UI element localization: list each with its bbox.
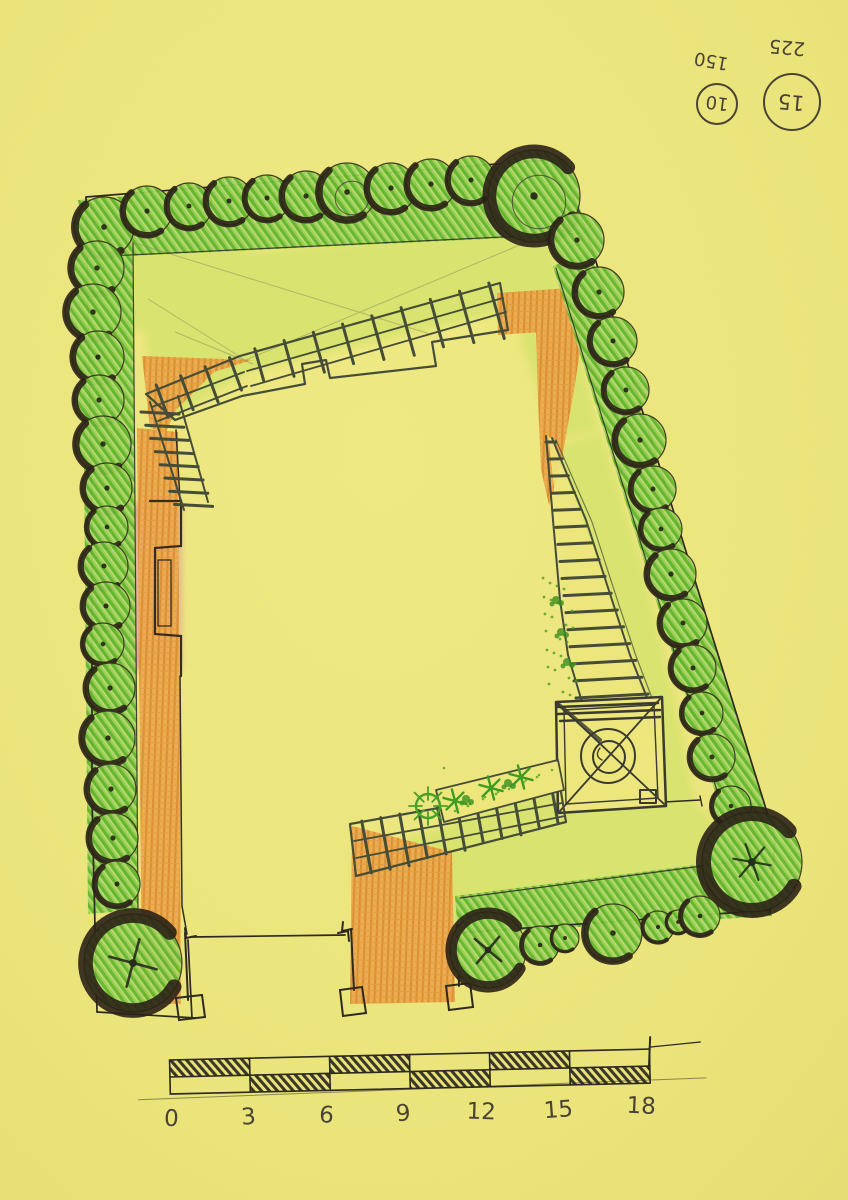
tree <box>659 599 707 647</box>
scale-tick-18: 18 <box>626 1093 656 1120</box>
tree <box>680 896 720 936</box>
tree <box>681 692 723 734</box>
tree <box>646 549 696 599</box>
tree <box>450 912 526 988</box>
scale-tick-3: 3 <box>240 1104 257 1131</box>
scale-tick-9: 9 <box>395 1100 412 1127</box>
annotation-large-value: 15 <box>777 89 806 115</box>
plan-drawing: 10 150 15 225 0 3 <box>0 0 848 1200</box>
tree <box>614 414 666 466</box>
tree <box>670 645 716 691</box>
tree <box>82 623 124 665</box>
tree <box>88 813 138 863</box>
scanned-landscape-plan: 10 150 15 225 0 3 <box>0 0 848 1200</box>
tree <box>85 663 135 713</box>
tree <box>94 861 140 907</box>
path-gate-strip <box>350 826 455 1004</box>
tree <box>702 812 802 912</box>
annotation-large-label: 225 <box>768 34 806 59</box>
scale-tick-6: 6 <box>318 1102 334 1129</box>
scale-tick-15: 15 <box>543 1096 574 1124</box>
tree <box>84 914 182 1012</box>
tree <box>603 367 649 413</box>
tree <box>589 317 637 365</box>
tree <box>550 213 604 267</box>
tree <box>551 924 579 952</box>
tree <box>689 734 735 780</box>
scale-tick-0: 0 <box>163 1106 179 1133</box>
tree <box>640 508 682 550</box>
tree <box>630 466 676 512</box>
annotation-small-value: 10 <box>705 91 730 115</box>
tree <box>81 711 135 765</box>
tree <box>86 764 136 814</box>
tree <box>584 904 642 962</box>
fountain-plaza <box>556 697 666 813</box>
tree <box>574 267 624 317</box>
scale-tick-12: 12 <box>466 1099 496 1126</box>
